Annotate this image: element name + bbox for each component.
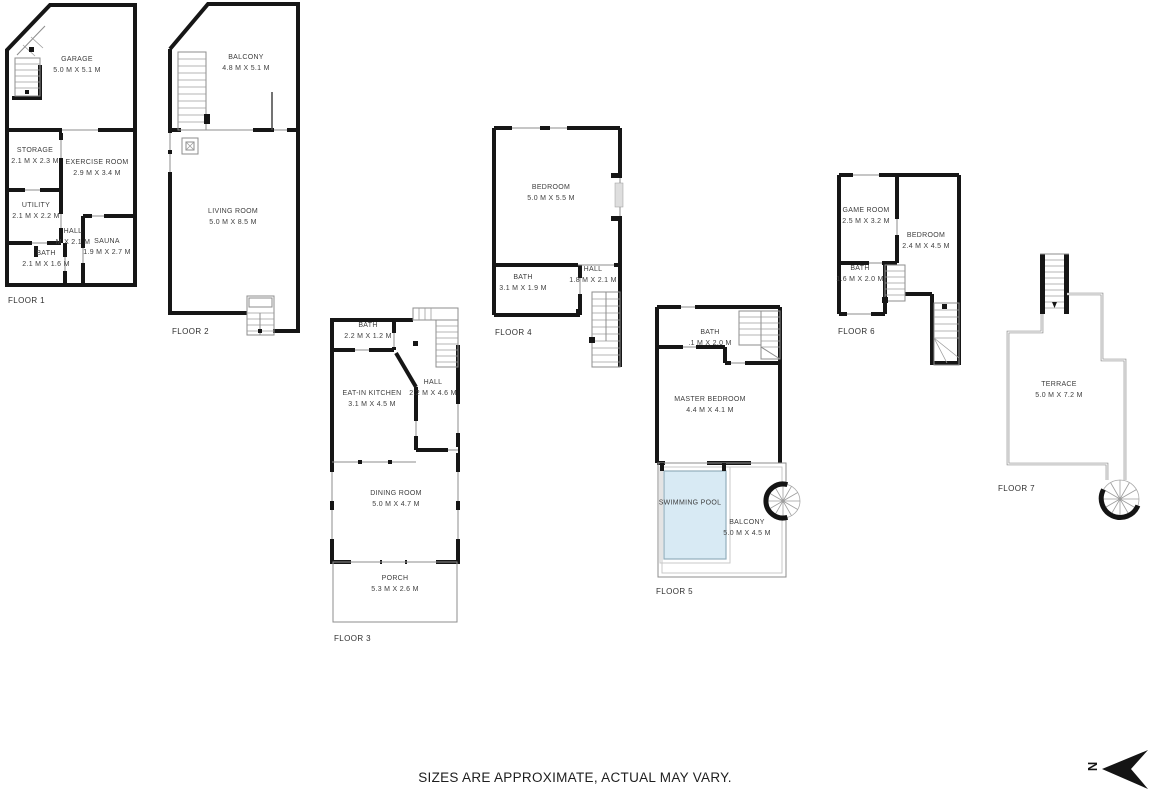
- room-label-hall: HALL1.8 M X 2.1 M: [569, 264, 616, 286]
- fireplace-icon: [182, 138, 198, 154]
- room-label-bath: BATH1.6 M X 2.0 M: [836, 263, 883, 285]
- floor-5: BATH.1 M X 2.0 M MASTER BEDROOM4.4 M X 4…: [655, 305, 805, 591]
- staircase-icon: [1040, 254, 1069, 314]
- floor-1: GARAGE5.0 M X 5.1 M STORAGE2.1 M X 2.3 M…: [5, 3, 139, 289]
- floor-3: BATH2.2 M X 1.2 M HALL2.2 M X 4.6 M EAT-…: [330, 305, 464, 627]
- room-label-game-room: GAME ROOM2.5 M X 3.2 M: [842, 205, 889, 227]
- room-label-balcony: BALCONY5.0 M X 4.5 M: [723, 517, 770, 539]
- spiral-staircase-icon: [1101, 480, 1139, 518]
- room-label-bath: BATH3.1 M X 1.9 M: [499, 272, 546, 294]
- room-label-eat-in-kitchen: EAT-IN KITCHEN3.1 M X 4.5 M: [343, 388, 402, 410]
- room-label-master-bedroom: MASTER BEDROOM4.4 M X 4.1 M: [674, 394, 745, 416]
- room-label-dining-room: DINING ROOM5.0 M X 4.7 M: [370, 488, 422, 510]
- staircase-icon: [589, 292, 620, 367]
- floor-1-label: FLOOR 1: [8, 296, 45, 305]
- room-label-swimming-pool: SWIMMING POOL: [659, 498, 722, 509]
- swimming-pool: [664, 471, 726, 559]
- staircase-icon: [882, 265, 905, 303]
- room-label-garage: GARAGE5.0 M X 5.1 M: [53, 54, 100, 76]
- staircase-icon: [413, 308, 458, 367]
- staircase-icon: [247, 296, 274, 335]
- room-label-sauna: SAUNA1.9 M X 2.7 M: [83, 236, 130, 258]
- room-label-bath: BATH2.1 M X 1.6 M: [22, 248, 69, 270]
- room-label-storage: STORAGE2.1 M X 2.3 M: [11, 145, 58, 167]
- room-label-terrace: TERRACE5.0 M X 7.2 M: [1035, 379, 1082, 401]
- room-label-bath: BATH2.2 M X 1.2 M: [344, 320, 391, 342]
- room-label-bedroom: BEDROOM5.0 M X 5.5 M: [527, 182, 574, 204]
- staircase-icon: [178, 52, 210, 130]
- room-label-hall: HALL2.2 M X 4.6 M: [409, 377, 456, 399]
- staircase-icon: [934, 303, 959, 365]
- room-label-bedroom: BEDROOM2.4 M X 4.5 M: [902, 230, 949, 252]
- room-label-balcony: BALCONY4.8 M X 5.1 M: [222, 52, 269, 74]
- room-label-exercise-room: EXERCISE ROOM2.9 M X 3.4 M: [65, 157, 128, 179]
- room-label-porch: PORCH5.3 M X 2.6 M: [371, 573, 418, 595]
- north-label: N: [1085, 762, 1100, 771]
- floor-2-label: FLOOR 2: [172, 327, 209, 336]
- room-label-living-room: LIVING ROOM5.0 M X 8.5 M: [208, 206, 258, 228]
- spiral-staircase-icon: [766, 484, 800, 518]
- window-icon: [615, 183, 623, 207]
- floor-6-label: FLOOR 6: [838, 327, 875, 336]
- room-label-bath: BATH.1 M X 2.0 M: [688, 327, 731, 349]
- staircase-icon: [739, 311, 780, 359]
- floor-5-label: FLOOR 5: [656, 587, 693, 596]
- north-arrow-icon: [1102, 749, 1150, 791]
- floor-2: BALCONY4.8 M X 5.1 M LIVING ROOM5.0 M X …: [168, 2, 302, 338]
- floorplan-canvas: GARAGE5.0 M X 5.1 M STORAGE2.1 M X 2.3 M…: [0, 0, 1150, 792]
- room-label-utility: UTILITY2.1 M X 2.2 M: [12, 200, 59, 222]
- floor-3-label: FLOOR 3: [334, 634, 371, 643]
- disclaimer-text: SIZES ARE APPROXIMATE, ACTUAL MAY VARY.: [0, 770, 1150, 785]
- floor-7-label: FLOOR 7: [998, 484, 1035, 493]
- floor-6: GAME ROOM2.5 M X 3.2 M BEDROOM2.4 M X 4.…: [837, 173, 965, 373]
- floor-4-label: FLOOR 4: [495, 328, 532, 337]
